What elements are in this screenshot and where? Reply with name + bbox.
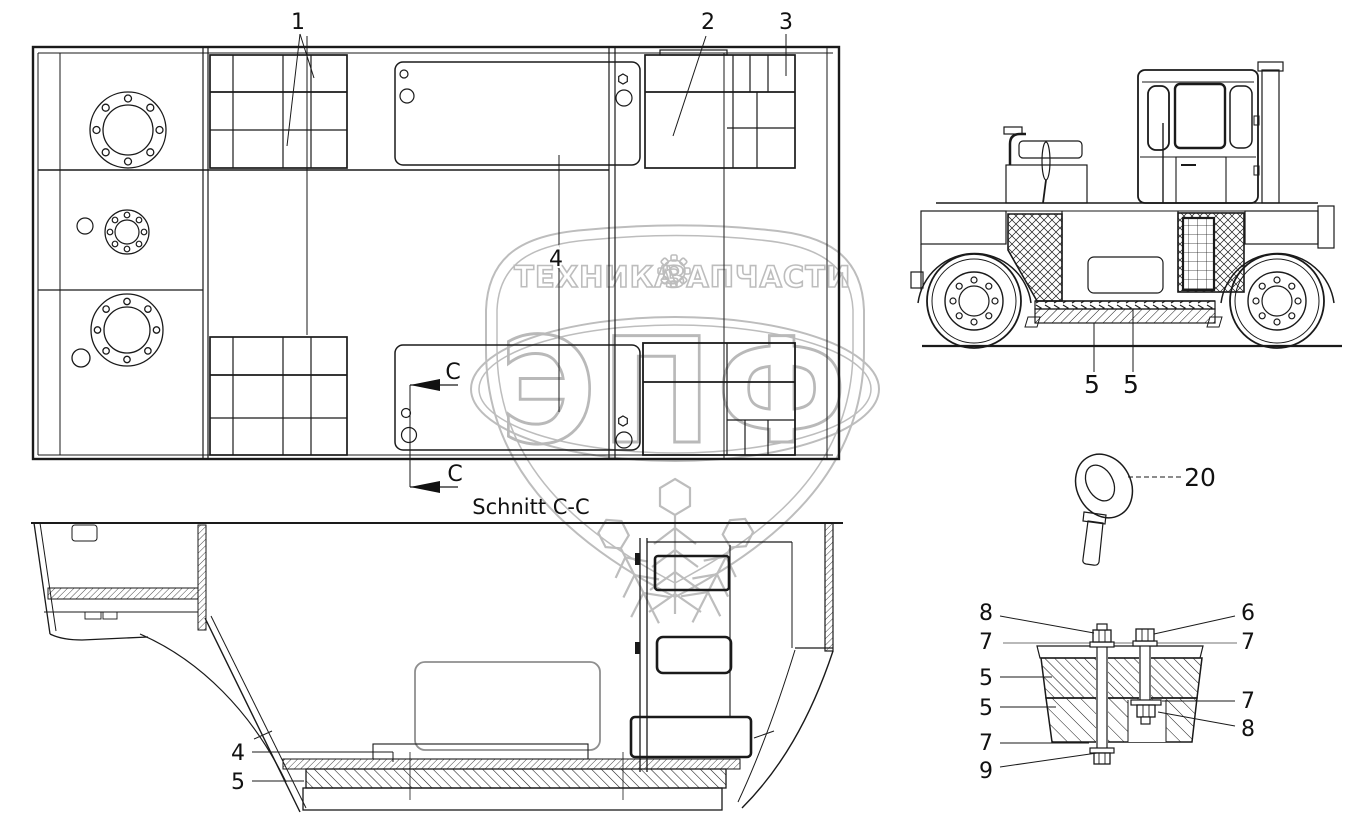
callout-5-machine-b: 5 (1123, 370, 1139, 399)
front-mesh-panel (1008, 214, 1062, 301)
detail-callout-5-lower: 5 (979, 696, 993, 721)
exhaust-pipe (1010, 134, 1026, 165)
flange-opening-middle (77, 210, 149, 254)
parts-diagram: ТЕХНИКА ЗАПЧАСТИ ЭПФ (0, 0, 1346, 828)
detail-callout-5-upper: 5 (979, 666, 993, 691)
callout-2: 2 (701, 10, 715, 35)
detail-block-lower (1046, 698, 1197, 742)
watermark-brand-right: ЗАПЧАСТИ (665, 260, 852, 294)
ballast-strip-main (1035, 309, 1215, 323)
watermark: ТЕХНИКА ЗАПЧАСТИ ЭПФ (471, 226, 879, 634)
detail-top-plate (1037, 646, 1203, 658)
engine-hood (1006, 165, 1087, 203)
plate-4-section (373, 744, 588, 759)
plate-bottom (303, 788, 722, 810)
cab (1138, 70, 1259, 203)
callout-4-plan: 4 (549, 247, 563, 272)
tail-bracket (1318, 206, 1334, 248)
side-box (1088, 257, 1163, 293)
rear-grille (1183, 218, 1214, 290)
section-title: Schnitt C-C (472, 495, 589, 519)
left-tank (34, 523, 206, 640)
cab-door (1176, 157, 1226, 203)
watermark-logo: ЭПФ (500, 307, 852, 477)
muffler (1019, 141, 1082, 158)
section-letter-top: C (445, 360, 460, 385)
cab-rear-window (1230, 86, 1252, 148)
callout-4-section: 4 (231, 741, 245, 766)
callout-5-machine-a: 5 (1084, 370, 1100, 399)
eyebolt (1065, 444, 1184, 565)
detail-callout-7-midright: 7 (1241, 689, 1255, 714)
callout-3: 3 (779, 10, 793, 35)
flange-opening-bottom (72, 294, 163, 367)
detail-callout-7-topleft: 7 (979, 630, 993, 655)
detail-callout-9: 9 (979, 759, 993, 784)
center-column (631, 538, 792, 772)
callout-1: 1 (291, 10, 305, 35)
rear-frame (1245, 211, 1318, 244)
cab-front-window (1148, 86, 1169, 150)
front-frame (921, 211, 1006, 244)
right-wall (738, 523, 833, 808)
detail-callout-8-left: 8 (979, 601, 993, 626)
detail-callout-7-topright: 7 (1241, 630, 1255, 655)
wheat-ear-left (587, 510, 679, 633)
front-wheel (927, 254, 1021, 348)
cover-plate-section (415, 662, 600, 750)
grid-block-top-right (645, 50, 795, 168)
exhaust-mast (1262, 70, 1279, 203)
machine-view (911, 62, 1342, 372)
cab-door-window (1175, 84, 1225, 148)
grid-block-top-left (210, 55, 347, 168)
detail-callout-6: 6 (1241, 601, 1255, 626)
plate-5-section (306, 769, 726, 788)
detail-callout-8-right: 8 (1241, 717, 1255, 742)
callout-20: 20 (1184, 463, 1216, 492)
flange-opening-top (90, 92, 166, 168)
steering-wheel (1042, 142, 1050, 180)
section-letter-bottom: C (447, 462, 462, 487)
wheat-ear-right (673, 509, 765, 632)
detail-callout-7-bottomleft: 7 (979, 731, 993, 756)
bottom-plate-stack (283, 744, 740, 810)
detail-block-upper (1041, 658, 1202, 698)
grid-block-bottom-left (210, 337, 347, 455)
ballast-strip-top (1035, 301, 1215, 309)
cover-plate-top (395, 62, 640, 165)
watermark-brand-left: ТЕХНИКА (514, 260, 678, 294)
callout-5-section: 5 (231, 770, 245, 795)
bolt-detail (1000, 616, 1237, 767)
plate-thin-hatch (283, 759, 740, 769)
